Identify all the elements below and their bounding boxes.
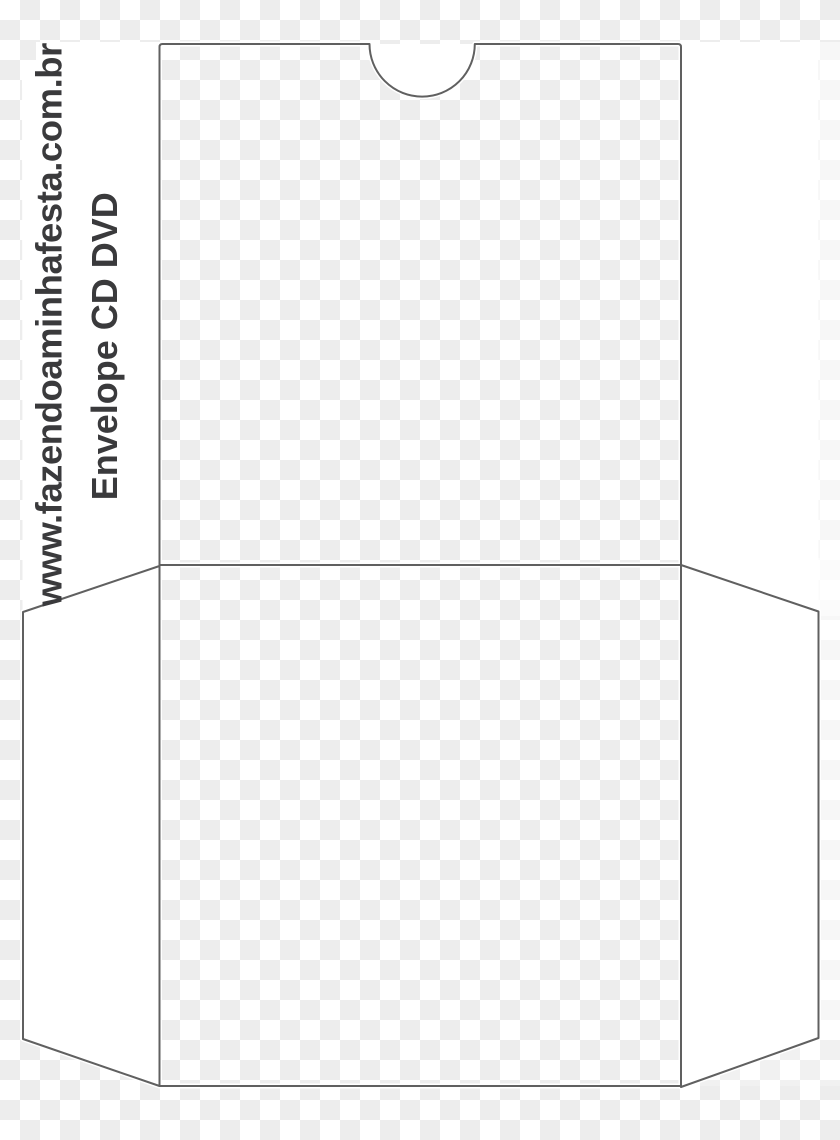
svg-text:www.fazendoaminhafesta.com.br: www.fazendoaminhafesta.com.br: [29, 43, 70, 608]
svg-text:Envelope CD DVD: Envelope CD DVD: [84, 192, 125, 500]
